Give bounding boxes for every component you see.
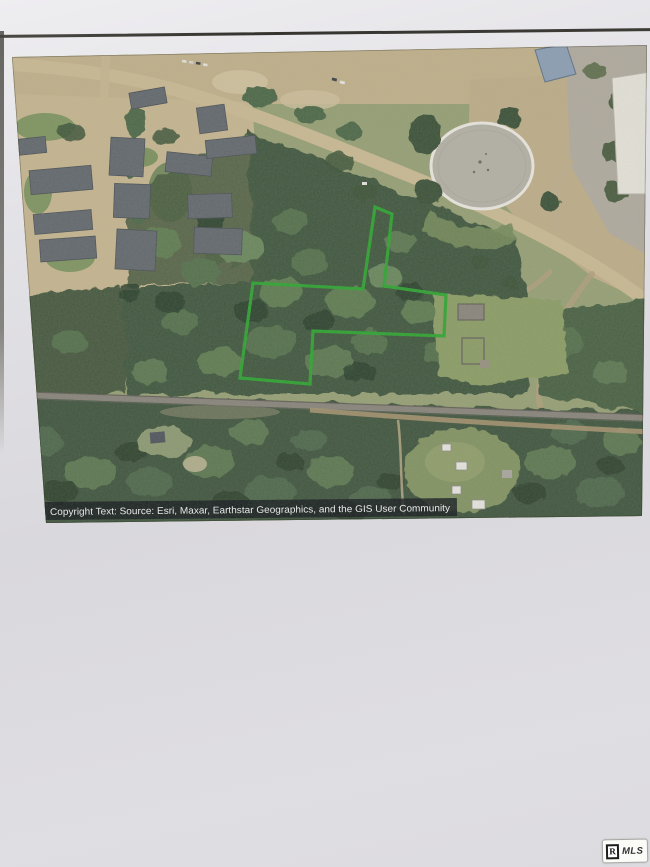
- paper-left-edge-shadow: [0, 31, 4, 455]
- aerial-map-canvas: Copyright Text: Source: Esri, Maxar, Ear…: [10, 42, 650, 526]
- paper-top-edge-line: [0, 28, 650, 38]
- mls-label: MLS: [622, 845, 643, 856]
- photographed-listing-page: Copyright Text: Source: Esri, Maxar, Ear…: [0, 0, 650, 867]
- mls-realtor-watermark: R MLS: [602, 839, 648, 864]
- realtor-r-icon: R: [606, 844, 619, 859]
- aerial-map-photo: Copyright Text: Source: Esri, Maxar, Ear…: [10, 42, 650, 526]
- print-grain-overlay: [10, 42, 650, 526]
